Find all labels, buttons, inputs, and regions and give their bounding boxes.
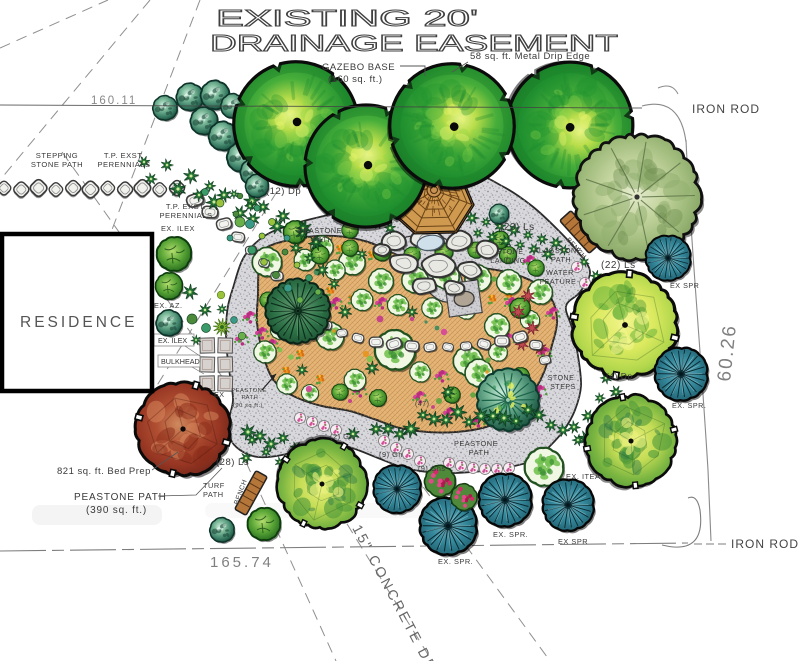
svg-text:FEATURE: FEATURE [540, 277, 577, 286]
svg-text:PERENNIALS: PERENNIALS [97, 160, 150, 169]
svg-text:EX. AZ.: EX. AZ. [154, 301, 183, 310]
svg-text:RESIDENCE: RESIDENCE [20, 314, 137, 331]
svg-text:(23) Ls: (23) Ls [500, 222, 535, 233]
svg-text:IRON ROD: IRON ROD [731, 537, 799, 551]
svg-text:160.11: 160.11 [91, 95, 137, 107]
svg-text:60.26: 60.26 [714, 323, 741, 382]
svg-text:165.74: 165.74 [210, 554, 274, 571]
svg-text:BULKHEAD: BULKHEAD [161, 357, 200, 366]
svg-text:PATH: PATH [551, 255, 571, 264]
svg-text:STEPS: STEPS [550, 384, 575, 391]
svg-text:STEPPING: STEPPING [36, 151, 78, 160]
svg-text:EX. ILEX: EX. ILEX [161, 224, 195, 233]
svg-text:58 sq. ft. Metal Drip Edge: 58 sq. ft. Metal Drip Edge [470, 51, 590, 62]
svg-text:PATH: PATH [242, 395, 259, 401]
svg-text:(12) Dp: (12) Dp [266, 186, 301, 197]
svg-text:T.P. EXST.: T.P. EXST. [166, 202, 206, 211]
svg-text:(4) Dp: (4) Dp [606, 371, 633, 381]
svg-text:WATER: WATER [546, 268, 574, 277]
svg-text:(160 sq. ft.): (160 sq. ft.) [328, 74, 383, 85]
svg-text:PEASTONE: PEASTONE [298, 226, 342, 235]
svg-text:PEASTONE PATH: PEASTONE PATH [74, 492, 167, 503]
svg-text:TURF: TURF [203, 481, 225, 490]
svg-text:PATH: PATH [469, 448, 490, 457]
svg-text:(47): (47) [415, 401, 429, 408]
svg-text:(9) Gns: (9) Gns [418, 464, 445, 473]
svg-text:PERENNIALS: PERENNIALS [159, 211, 212, 220]
svg-text:STONE: STONE [548, 375, 575, 382]
svg-text:EX SPR: EX SPR [558, 537, 588, 546]
svg-text:EX. SPR.: EX. SPR. [438, 557, 473, 566]
svg-text:PATH: PATH [313, 235, 334, 244]
svg-text:PEASTONE: PEASTONE [454, 439, 498, 448]
svg-text:GAZEBO BASE: GAZEBO BASE [322, 62, 395, 73]
svg-text:EX. SPR.: EX. SPR. [672, 401, 706, 410]
svg-text:(9) Gn: (9) Gn [379, 450, 403, 459]
svg-text:PEASTONE: PEASTONE [231, 388, 266, 394]
svg-text:STONE PATH: STONE PATH [31, 160, 83, 169]
svg-text:IRON ROD: IRON ROD [692, 102, 760, 116]
svg-text:EXISTING 20': EXISTING 20' [216, 5, 478, 31]
svg-text:(28) Ls: (28) Ls [216, 457, 249, 468]
svg-text:EX. SPR.: EX. SPR. [493, 530, 528, 539]
svg-text:EX. ITEA: EX. ITEA [566, 472, 600, 481]
svg-text:LANDING: LANDING [490, 256, 525, 265]
svg-text:EX: EX [214, 390, 225, 399]
svg-text:PATH: PATH [203, 490, 224, 499]
svg-text:EX SPR: EX SPR [670, 281, 699, 290]
svg-text:(90 sq.ft.): (90 sq.ft.) [233, 403, 263, 409]
svg-text:STONE: STONE [496, 247, 523, 256]
svg-text:T.P. EXST.: T.P. EXST. [104, 151, 144, 160]
svg-text:(390 sq. ft.): (390 sq. ft.) [86, 505, 147, 516]
svg-text:(22) Ls: (22) Ls [601, 260, 636, 271]
svg-text:821 sq. ft. Bed Prep: 821 sq. ft. Bed Prep [57, 466, 151, 477]
svg-text:(2) Gn: (2) Gn [330, 432, 354, 441]
